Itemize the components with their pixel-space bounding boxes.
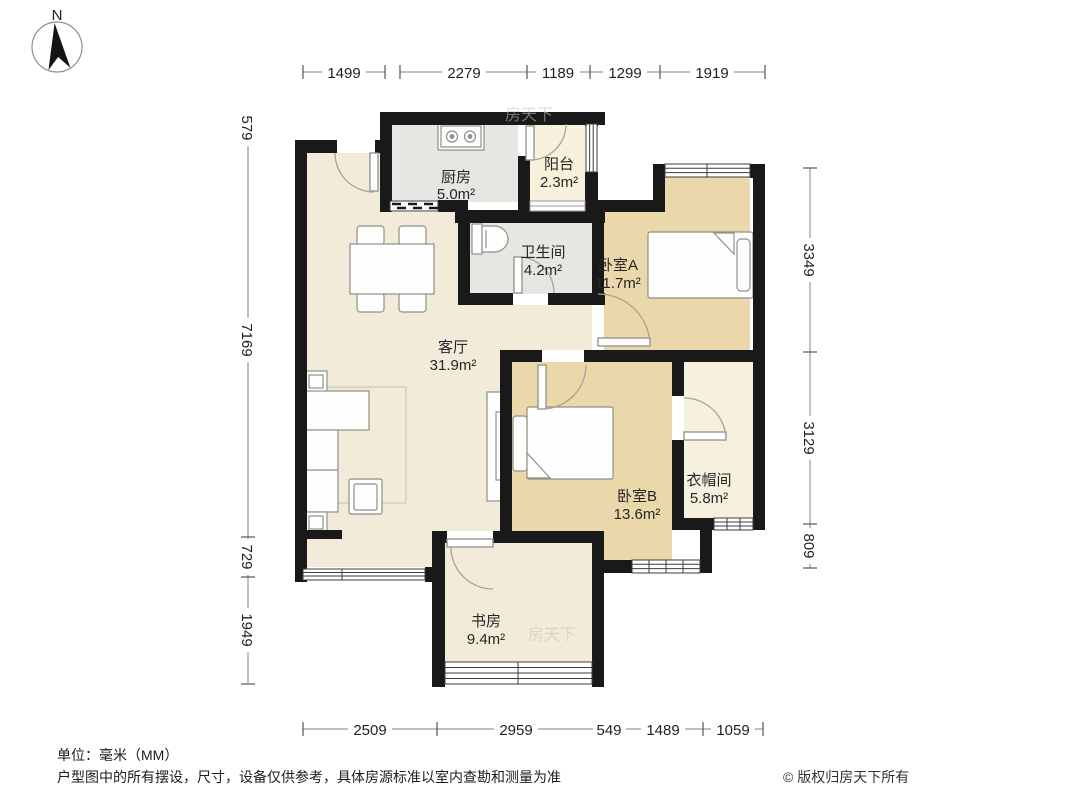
watermark-text: 房天下 [505,106,553,124]
compass: N [32,7,82,72]
window-bedroom-b [632,560,700,573]
window-cloakroom [714,518,753,530]
dining-table [350,244,434,294]
window-bedroom-a [665,164,750,177]
dim-left-3: 729 [238,544,255,569]
dining-chair [357,226,384,245]
dim-right-3: 809 [800,533,817,558]
sofa-body [305,430,338,512]
room-label-kitchen-name: 厨房 [441,169,471,186]
dim-top-1: 1499 [327,65,360,82]
sliding-door-kitchen [390,201,438,211]
side-table-top [309,375,323,388]
room-label-bedroom-a-area: 11.7m² [595,275,641,292]
room-label-study-area: 9.4m² [467,631,505,648]
disclaimer-note: 户型图中的所有摆设，尺寸，设备仅供参考，具体房源标准以室内查勘和测量为准 [57,767,561,787]
room-label-bedroom-a-name: 卧室A [598,257,638,274]
room-label-bathroom-area: 4.2m² [524,262,562,279]
dim-bottom-4: 1489 [646,722,679,739]
window-balcony-sill [530,201,585,211]
side-table-top [309,516,323,529]
dining-chair [399,226,426,245]
copyright-note: © 版权归房天下所有 [783,767,909,787]
watermark-text: 房天下 [528,626,576,644]
units-note: 单位：毫米（MM） [57,745,178,765]
room-label-cloakroom-area: 5.8m² [690,490,728,507]
dim-top-2: 2279 [447,65,480,82]
dim-bottom-5: 1059 [716,722,749,739]
dim-left-2: 7169 [238,323,255,356]
dim-bottom-2: 2959 [499,722,532,739]
stove-burner-dot [468,135,472,139]
dining-chair [399,293,426,312]
room-label-balcony-area: 2.3m² [540,174,578,191]
dim-top-4: 1299 [608,65,641,82]
room-label-bedroom-b-area: 13.6m² [614,506,661,523]
sofa-chaise [305,391,369,430]
room-label-cloakroom-name: 衣帽间 [686,472,731,489]
stove-burner-dot [450,135,454,139]
dim-right-1: 3349 [800,243,817,276]
room-label-kitchen-area: 5.0m² [437,186,475,203]
toilet-tank [472,224,482,254]
room-label-bedroom-b-name: 卧室B [617,488,657,505]
floorplan-drawing: 房天下 房天下 1499 [0,0,1066,800]
stove [438,123,484,150]
room-label-study-name: 书房 [471,613,501,630]
dim-right-2: 3129 [800,421,817,454]
room-label-bathroom-name: 卫生间 [520,244,565,261]
bed-a-pillow [737,239,750,291]
dim-top-5: 1919 [695,65,728,82]
dim-bottom-1: 2509 [353,722,386,739]
room-label-living-area: 31.9m² [430,357,477,374]
window-study [445,662,592,684]
dim-top-3: 1189 [542,65,574,82]
dining-chair [357,293,384,312]
compass-north-label: N [52,7,63,24]
dim-left-4: 1949 [238,613,255,646]
window-living [303,569,425,580]
dim-bottom-3: 549 [596,722,621,739]
dim-left-1: 579 [238,115,255,140]
room-label-living-name: 客厅 [438,339,468,356]
room-label-balcony-name: 阳台 [544,156,574,173]
window-balcony [586,124,597,172]
bed-b-headboard [513,416,527,471]
floorplan-page: 房天下 房天下 1499 [0,0,1066,800]
armchair-seat [354,484,377,510]
